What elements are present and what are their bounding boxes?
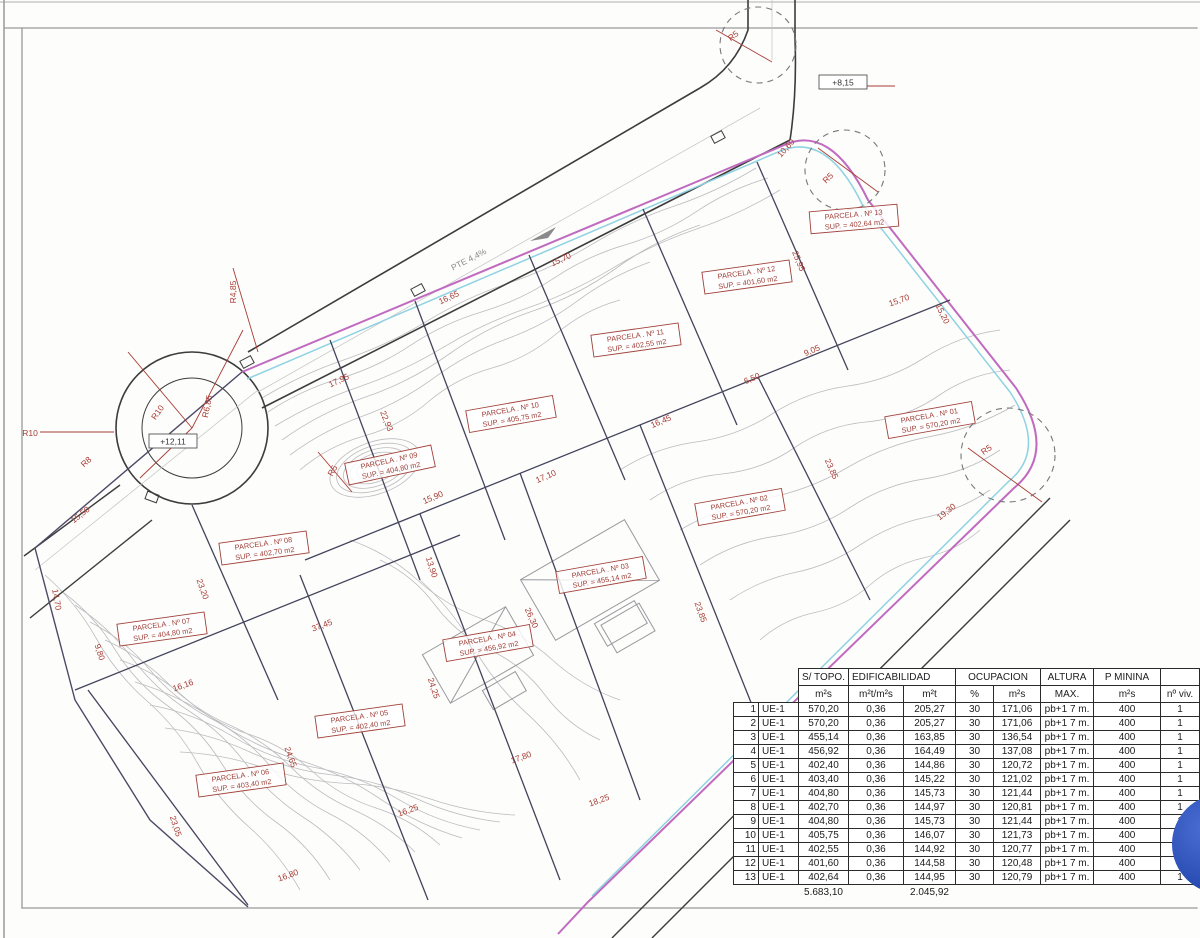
table-cell: 400 bbox=[1094, 773, 1161, 787]
table-cell: UE-1 bbox=[759, 801, 799, 815]
table-cell: pb+1 7 m. bbox=[1041, 759, 1094, 773]
table-row: 7UE-1404,800,36145,7330121,44pb+1 7 m.40… bbox=[734, 787, 1200, 801]
table-cell: 1 bbox=[1161, 759, 1200, 773]
parcel-label: PARCELA . Nº 11SUP. = 402,55 m2 bbox=[591, 323, 681, 357]
table-cell: 400 bbox=[1094, 703, 1161, 717]
unit-n-viv: nº viv. bbox=[1161, 686, 1200, 703]
parcel-label: PARCELA . Nº 13SUP. = 402,64 m2 bbox=[809, 204, 899, 234]
parcel-label: PARCELA . Nº 02SUP. = 570,20 m2 bbox=[695, 489, 785, 526]
dimension-label: 15,20 bbox=[934, 302, 952, 326]
dimension-label: 16,65 bbox=[437, 288, 461, 306]
spot-level-label: +8,15 bbox=[819, 75, 867, 89]
parcel-summary-table: S/ TOPO. EDIFICABILIDAD OCUPACION ALTURA… bbox=[733, 668, 1200, 900]
totals-row: 5.683,10 2.045,92 bbox=[734, 885, 1200, 901]
dimension-label: 23,85 bbox=[823, 457, 841, 481]
parcel-label: PARCELA . Nº 03SUP. = 455,14 m2 bbox=[556, 557, 646, 594]
table-cell: 400 bbox=[1094, 871, 1161, 885]
dimension-label: R5 bbox=[820, 170, 835, 185]
table-cell: 121,44 bbox=[994, 815, 1041, 829]
parcel-label: PARCELA . Nº 07SUP. = 404,80 m2 bbox=[117, 612, 207, 646]
table-cell: 30 bbox=[956, 857, 994, 871]
table-cell: 402,40 bbox=[799, 759, 849, 773]
header-ocupacion: OCUPACION bbox=[956, 669, 1041, 686]
parcel-label: PARCELA . Nº 10SUP. = 405,75 m2 bbox=[466, 396, 556, 433]
table-cell: 400 bbox=[1094, 759, 1161, 773]
table-cell: 400 bbox=[1094, 731, 1161, 745]
table-cell: pb+1 7 m. bbox=[1041, 773, 1094, 787]
table-cell: 0,36 bbox=[849, 871, 904, 885]
table-cell: UE-1 bbox=[759, 871, 799, 885]
table-cell: UE-1 bbox=[759, 829, 799, 843]
dimension-label: 17,10 bbox=[534, 467, 558, 485]
unit-m2s: m²s bbox=[799, 686, 849, 703]
table-cell: 12 bbox=[734, 857, 759, 871]
header-blank bbox=[1161, 669, 1200, 686]
table-row: 5UE-1402,400,36144,8630120,72pb+1 7 m.40… bbox=[734, 759, 1200, 773]
table-cell: 1 bbox=[1161, 703, 1200, 717]
table-cell: 30 bbox=[956, 759, 994, 773]
table-cell: 30 bbox=[956, 745, 994, 759]
table-cell: 30 bbox=[956, 801, 994, 815]
table-cell: pb+1 7 m. bbox=[1041, 843, 1094, 857]
table-cell: 120,77 bbox=[994, 843, 1041, 857]
dimension-label: 15,90 bbox=[421, 488, 445, 506]
parcel-label: PARCELA . Nº 01SUP. = 570,20 m2 bbox=[885, 402, 975, 439]
table-row: 9UE-1404,800,36145,7330121,44pb+1 7 m.40… bbox=[734, 815, 1200, 829]
table-cell: 0,36 bbox=[849, 745, 904, 759]
table-cell: 0,36 bbox=[849, 787, 904, 801]
table-row: 10UE-1405,750,36146,0730121,73pb+1 7 m.4… bbox=[734, 829, 1200, 843]
table-cell: 136,54 bbox=[994, 731, 1041, 745]
table-cell: 0,36 bbox=[849, 843, 904, 857]
table-cell: 13 bbox=[734, 871, 759, 885]
parcel-label: PARCELA . Nº 08SUP. = 402,70 m2 bbox=[219, 531, 309, 565]
dimension-label: 17,80 bbox=[509, 749, 533, 766]
svg-text:+12,11: +12,11 bbox=[160, 437, 186, 447]
dimension-label: 23,05 bbox=[168, 814, 184, 838]
dimension-label: R10 bbox=[22, 428, 38, 438]
table-cell: 144,95 bbox=[904, 871, 956, 885]
table-cell: 1 bbox=[1161, 717, 1200, 731]
table-cell: 401,60 bbox=[799, 857, 849, 871]
dimension-label: 15,70 bbox=[887, 292, 911, 309]
dimension-label: R6,85 bbox=[200, 394, 215, 419]
parcel-label: PARCELA . Nº 04SUP. = 456,92 m2 bbox=[443, 625, 533, 662]
table-cell: 400 bbox=[1094, 815, 1161, 829]
header-s-topo: S/ TOPO. bbox=[799, 669, 849, 686]
dimension-label: R5 bbox=[726, 28, 741, 43]
table-cell: 121,02 bbox=[994, 773, 1041, 787]
table-cell: 404,80 bbox=[799, 787, 849, 801]
total-s-topo: 5.683,10 bbox=[799, 885, 849, 901]
table-cell: 171,06 bbox=[994, 703, 1041, 717]
parcel-label: PARCELA . Nº 06SUP. = 403,40 m2 bbox=[196, 763, 286, 797]
table-cell: 0,36 bbox=[849, 717, 904, 731]
table-cell: 1 bbox=[1161, 731, 1200, 745]
table-cell: 5 bbox=[734, 759, 759, 773]
table-cell: 0,36 bbox=[849, 703, 904, 717]
dimension-label: R5 bbox=[979, 442, 994, 457]
table-cell: 0,36 bbox=[849, 773, 904, 787]
table-row: 4UE-1456,920,36164,4930137,08pb+1 7 m.40… bbox=[734, 745, 1200, 759]
dimension-label: 16,80 bbox=[276, 867, 300, 884]
dimension-label: 23,85 bbox=[692, 600, 709, 624]
table-cell: 137,08 bbox=[994, 745, 1041, 759]
table-cell: 402,55 bbox=[799, 843, 849, 857]
table-cell: 30 bbox=[956, 787, 994, 801]
dimension-label: R4,85 bbox=[228, 280, 238, 303]
table-cell: pb+1 7 m. bbox=[1041, 731, 1094, 745]
dimension-label: 25,95 bbox=[790, 249, 807, 273]
table-cell: 400 bbox=[1094, 857, 1161, 871]
unit-m2s-3: m²s bbox=[1094, 686, 1161, 703]
table-cell: UE-1 bbox=[759, 787, 799, 801]
table-cell: 145,73 bbox=[904, 815, 956, 829]
table-cell: 400 bbox=[1094, 745, 1161, 759]
table-cell: 146,07 bbox=[904, 829, 956, 843]
table-row: 2UE-1570,200,36205,2730171,06pb+1 7 m.40… bbox=[734, 717, 1200, 731]
table-cell: 120,48 bbox=[994, 857, 1041, 871]
dimension-label: 23,20 bbox=[194, 577, 211, 601]
dimension-label: 9,80 bbox=[93, 643, 108, 662]
table-cell: pb+1 7 m. bbox=[1041, 829, 1094, 843]
table-cell: 0,36 bbox=[849, 801, 904, 815]
unit-m2s-2: m²s bbox=[994, 686, 1041, 703]
table-cell: pb+1 7 m. bbox=[1041, 703, 1094, 717]
table-cell: UE-1 bbox=[759, 703, 799, 717]
dimension-label: 15,70 bbox=[549, 250, 573, 268]
table-cell: 120,72 bbox=[994, 759, 1041, 773]
dimension-label: 19,30 bbox=[935, 501, 958, 522]
dimension-label: R10 bbox=[149, 403, 166, 422]
table-cell: UE-1 bbox=[759, 745, 799, 759]
table-row: 3UE-1455,140,36163,8530136,54pb+1 7 m.40… bbox=[734, 731, 1200, 745]
header-edificabilidad: EDIFICABILIDAD bbox=[849, 669, 956, 686]
table-cell: 400 bbox=[1094, 717, 1161, 731]
table-cell: pb+1 7 m. bbox=[1041, 871, 1094, 885]
table-cell: 400 bbox=[1094, 787, 1161, 801]
table-cell: 405,75 bbox=[799, 829, 849, 843]
table-cell: 120,79 bbox=[994, 871, 1041, 885]
table-cell: 1 bbox=[734, 703, 759, 717]
table-cell: 30 bbox=[956, 829, 994, 843]
dimension-label: PTE 4,4% bbox=[449, 246, 488, 272]
slope-arrow-icon bbox=[530, 227, 556, 241]
dimension-label: 6,50 bbox=[742, 370, 761, 386]
table-row: 6UE-1403,400,36145,2230121,02pb+1 7 m.40… bbox=[734, 773, 1200, 787]
table-cell: 8 bbox=[734, 801, 759, 815]
spot-level-label: +12,11 bbox=[149, 434, 197, 448]
table-cell: 30 bbox=[956, 703, 994, 717]
table-cell: 171,06 bbox=[994, 717, 1041, 731]
unit-pct: % bbox=[956, 686, 994, 703]
table-row: 13UE-1402,640,36144,9530120,79pb+1 7 m.4… bbox=[734, 871, 1200, 885]
table-row: 1UE-1570,200,36205,2730171,06pb+1 7 m.40… bbox=[734, 703, 1200, 717]
table-cell: UE-1 bbox=[759, 773, 799, 787]
table-cell: 120,81 bbox=[994, 801, 1041, 815]
table-cell: UE-1 bbox=[759, 759, 799, 773]
table-cell: 205,27 bbox=[904, 703, 956, 717]
table-cell: 400 bbox=[1094, 829, 1161, 843]
table-cell: 0,36 bbox=[849, 857, 904, 871]
table-row: 12UE-1401,600,36144,5830120,48pb+1 7 m.4… bbox=[734, 857, 1200, 871]
table-cell: UE-1 bbox=[759, 731, 799, 745]
table-cell: pb+1 7 m. bbox=[1041, 857, 1094, 871]
table-cell: pb+1 7 m. bbox=[1041, 815, 1094, 829]
table-cell: 144,86 bbox=[904, 759, 956, 773]
table-cell: 30 bbox=[956, 717, 994, 731]
table-cell: UE-1 bbox=[759, 843, 799, 857]
table-cell: 163,85 bbox=[904, 731, 956, 745]
plan-sheet: R4,85R10R10R6,85R8R5R5R5R5PTE 4,4%16,651… bbox=[0, 0, 1200, 938]
table-cell: 400 bbox=[1094, 801, 1161, 815]
table-cell: 144,58 bbox=[904, 857, 956, 871]
dimension-label: 24,25 bbox=[426, 676, 442, 700]
dimension-label: 22,93 bbox=[378, 409, 395, 433]
total-m2t: 2.045,92 bbox=[904, 885, 956, 901]
table-row: 11UE-1402,550,36144,9230120,77pb+1 7 m.4… bbox=[734, 843, 1200, 857]
table-cell: 30 bbox=[956, 731, 994, 745]
table-cell: 1 bbox=[1161, 745, 1200, 759]
table-cell: 10 bbox=[734, 829, 759, 843]
table-cell: 30 bbox=[956, 773, 994, 787]
table-cell: 121,44 bbox=[994, 787, 1041, 801]
table-cell: pb+1 7 m. bbox=[1041, 787, 1094, 801]
header-p-minina: P MININA bbox=[1094, 669, 1161, 686]
table-cell: 11 bbox=[734, 843, 759, 857]
table-cell: 570,20 bbox=[799, 717, 849, 731]
table-cell: 400 bbox=[1094, 843, 1161, 857]
header-altura: ALTURA bbox=[1041, 669, 1094, 686]
table-cell: 402,64 bbox=[799, 871, 849, 885]
table-cell: UE-1 bbox=[759, 815, 799, 829]
unit-m2t: m²t bbox=[904, 686, 956, 703]
table-cell: 402,70 bbox=[799, 801, 849, 815]
table-cell: 9 bbox=[734, 815, 759, 829]
table-corner bbox=[734, 669, 799, 703]
svg-text:+8,15: +8,15 bbox=[832, 78, 854, 88]
table-cell: 144,97 bbox=[904, 801, 956, 815]
table-cell: 145,22 bbox=[904, 773, 956, 787]
table-cell: 145,73 bbox=[904, 787, 956, 801]
unit-max: MAX. bbox=[1041, 686, 1094, 703]
table-cell: 0,36 bbox=[849, 731, 904, 745]
table-cell: UE-1 bbox=[759, 857, 799, 871]
table-cell: 1 bbox=[1161, 787, 1200, 801]
dimension-label: 16,16 bbox=[171, 677, 195, 694]
dimension-label: 18,25 bbox=[587, 792, 611, 809]
table-cell: pb+1 7 m. bbox=[1041, 801, 1094, 815]
table-cell: 30 bbox=[956, 871, 994, 885]
table-cell: 570,20 bbox=[799, 703, 849, 717]
table-cell: 121,73 bbox=[994, 829, 1041, 843]
table-cell: 456,92 bbox=[799, 745, 849, 759]
dimension-label: 15,50 bbox=[69, 504, 92, 525]
dimension-label: 16,45 bbox=[649, 412, 673, 430]
table-cell: 1 bbox=[1161, 773, 1200, 787]
table-cell: 164,49 bbox=[904, 745, 956, 759]
unit-m2t-m2s: m²t/m²s bbox=[849, 686, 904, 703]
table-cell: 2 bbox=[734, 717, 759, 731]
table-cell: 0,36 bbox=[849, 759, 904, 773]
table-cell: 4 bbox=[734, 745, 759, 759]
table-cell: 0,36 bbox=[849, 815, 904, 829]
table-cell: pb+1 7 m. bbox=[1041, 717, 1094, 731]
table-cell: 144,92 bbox=[904, 843, 956, 857]
table-cell: 30 bbox=[956, 843, 994, 857]
table-cell: 30 bbox=[956, 815, 994, 829]
table-cell: pb+1 7 m. bbox=[1041, 745, 1094, 759]
table-cell: 403,40 bbox=[799, 773, 849, 787]
dimension-label: R8 bbox=[79, 454, 94, 469]
table-cell: UE-1 bbox=[759, 717, 799, 731]
parcel-label: PARCELA . Nº 05SUP. = 402,40 m2 bbox=[315, 704, 405, 738]
table-cell: 6 bbox=[734, 773, 759, 787]
table-row: 8UE-1402,700,36144,9730120,81pb+1 7 m.40… bbox=[734, 801, 1200, 815]
table-cell: 455,14 bbox=[799, 731, 849, 745]
table-cell: 0,36 bbox=[849, 829, 904, 843]
table-cell: 404,80 bbox=[799, 815, 849, 829]
table-cell: 205,27 bbox=[904, 717, 956, 731]
parcel-label: PARCELA . Nº 12SUP. = 401,60 m2 bbox=[702, 260, 792, 294]
table-cell: 3 bbox=[734, 731, 759, 745]
table-cell: 7 bbox=[734, 787, 759, 801]
